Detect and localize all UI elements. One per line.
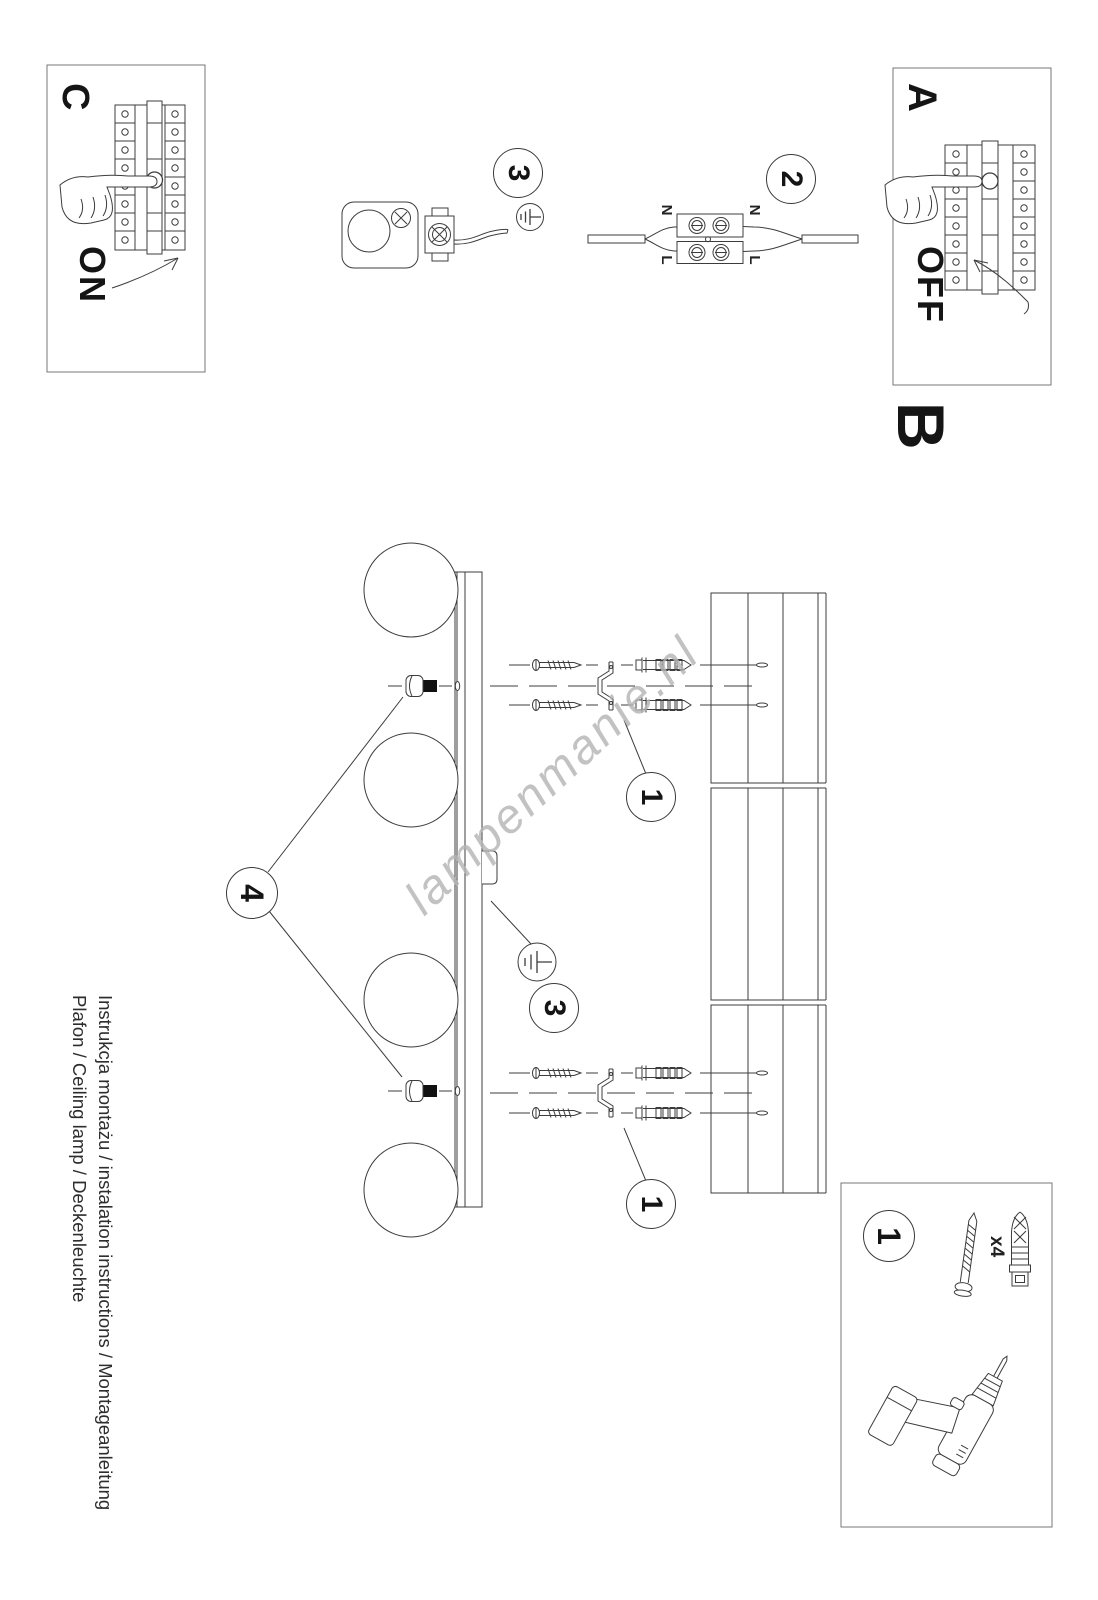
- callout-1b: 1: [626, 1179, 676, 1229]
- step-badge-3-main: 3: [529, 983, 579, 1033]
- section-c-label: C: [56, 83, 94, 110]
- live-label-bottom: L: [659, 251, 674, 269]
- canopy-part-figure: [342, 202, 544, 268]
- step-badge-4: 4: [226, 867, 278, 919]
- step-badge-3-detail: 3: [493, 148, 543, 198]
- step-badge-1-box: 1: [863, 1210, 915, 1262]
- callout-1a: 1: [626, 772, 676, 822]
- wall-plug-icon: [636, 658, 691, 1121]
- wall-plug-icon: [1010, 1212, 1031, 1286]
- ceiling-planks: [711, 593, 826, 1193]
- document-title-line2: Plafon / Ceiling lamp / Deckenleuchte: [70, 995, 89, 1302]
- terminal-connector-figure: [588, 214, 858, 264]
- earth-icon: [521, 209, 541, 225]
- on-arrow-icon: [112, 258, 178, 288]
- drill-icon: [867, 1315, 1020, 1482]
- quantity-label: x4: [987, 1236, 1006, 1257]
- breaker-panel-a: [945, 141, 1035, 294]
- off-text: OFF: [912, 246, 948, 324]
- step-badge-2: 2: [766, 154, 816, 204]
- scanned-instruction-page: { "watermark": { "text": "lampenmanie.nl…: [0, 0, 1098, 1600]
- section-b-label: B: [888, 402, 954, 450]
- section-a-label: A: [902, 83, 942, 112]
- neutral-label-top: N: [747, 201, 762, 219]
- document-title-line1: Instrukcja montażu / instalation instruc…: [96, 995, 115, 1510]
- earth-icon-main: [518, 943, 556, 981]
- screw-icon: [954, 1212, 983, 1298]
- on-text: ON: [74, 246, 110, 304]
- live-label-top: L: [747, 251, 762, 269]
- neutral-label-bottom: N: [659, 201, 674, 219]
